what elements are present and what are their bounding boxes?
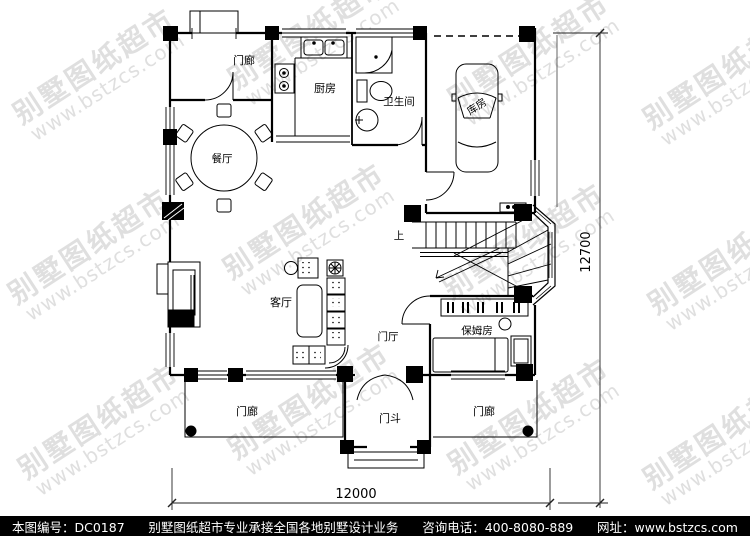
dimension-bottom: 12000	[335, 487, 376, 502]
label-porch-left: 门廊	[236, 404, 258, 418]
page: 别墅图纸超市www.bstzcs.com 别墅图纸超市www.bstzcs.co…	[0, 0, 750, 536]
tv-unit	[157, 262, 200, 327]
living-furniture	[285, 258, 349, 368]
label-living: 客厅	[270, 295, 292, 309]
label-kitchen: 厨房	[314, 82, 336, 95]
footer-drawing-no: 本图编号：DC0187	[12, 517, 125, 536]
label-bathroom: 卫生间	[383, 95, 415, 108]
label-foyer: 门厅	[378, 330, 399, 343]
staircase	[412, 216, 551, 296]
room-labels: 门廊 厨房 卫生间 库房 餐厅 客厅 门厅 保姆房 门斗 门廊 门廊 上	[212, 53, 496, 425]
label-garage: 库房	[464, 95, 489, 117]
label-dining: 餐厅	[212, 152, 233, 165]
footer-website: 网址：www.bstzcs.com	[597, 517, 738, 536]
garage-car	[434, 36, 526, 212]
footer-phone: 咨询电话：400-8080-889	[422, 517, 573, 536]
label-porch-top: 门廊	[233, 53, 255, 67]
bathroom-fixtures	[355, 37, 392, 131]
walls	[170, 28, 535, 447]
dimension-right: 12700	[579, 231, 594, 272]
columns	[162, 26, 535, 454]
label-vestibule: 门斗	[379, 411, 401, 425]
footer-service: 别墅图纸超市专业承接全国各地别墅设计业务	[148, 517, 398, 536]
label-porch-right: 门廊	[473, 404, 495, 418]
floor-plan: 12000 12700	[0, 0, 750, 517]
label-nanny-room: 保姆房	[461, 324, 493, 337]
doors	[205, 72, 454, 400]
footer-bar: 本图编号：DC0187 别墅图纸超市专业承接全国各地别墅设计业务 咨询电话：40…	[0, 516, 750, 536]
bay-window	[533, 205, 555, 305]
label-stairs-up: 上	[394, 230, 405, 242]
